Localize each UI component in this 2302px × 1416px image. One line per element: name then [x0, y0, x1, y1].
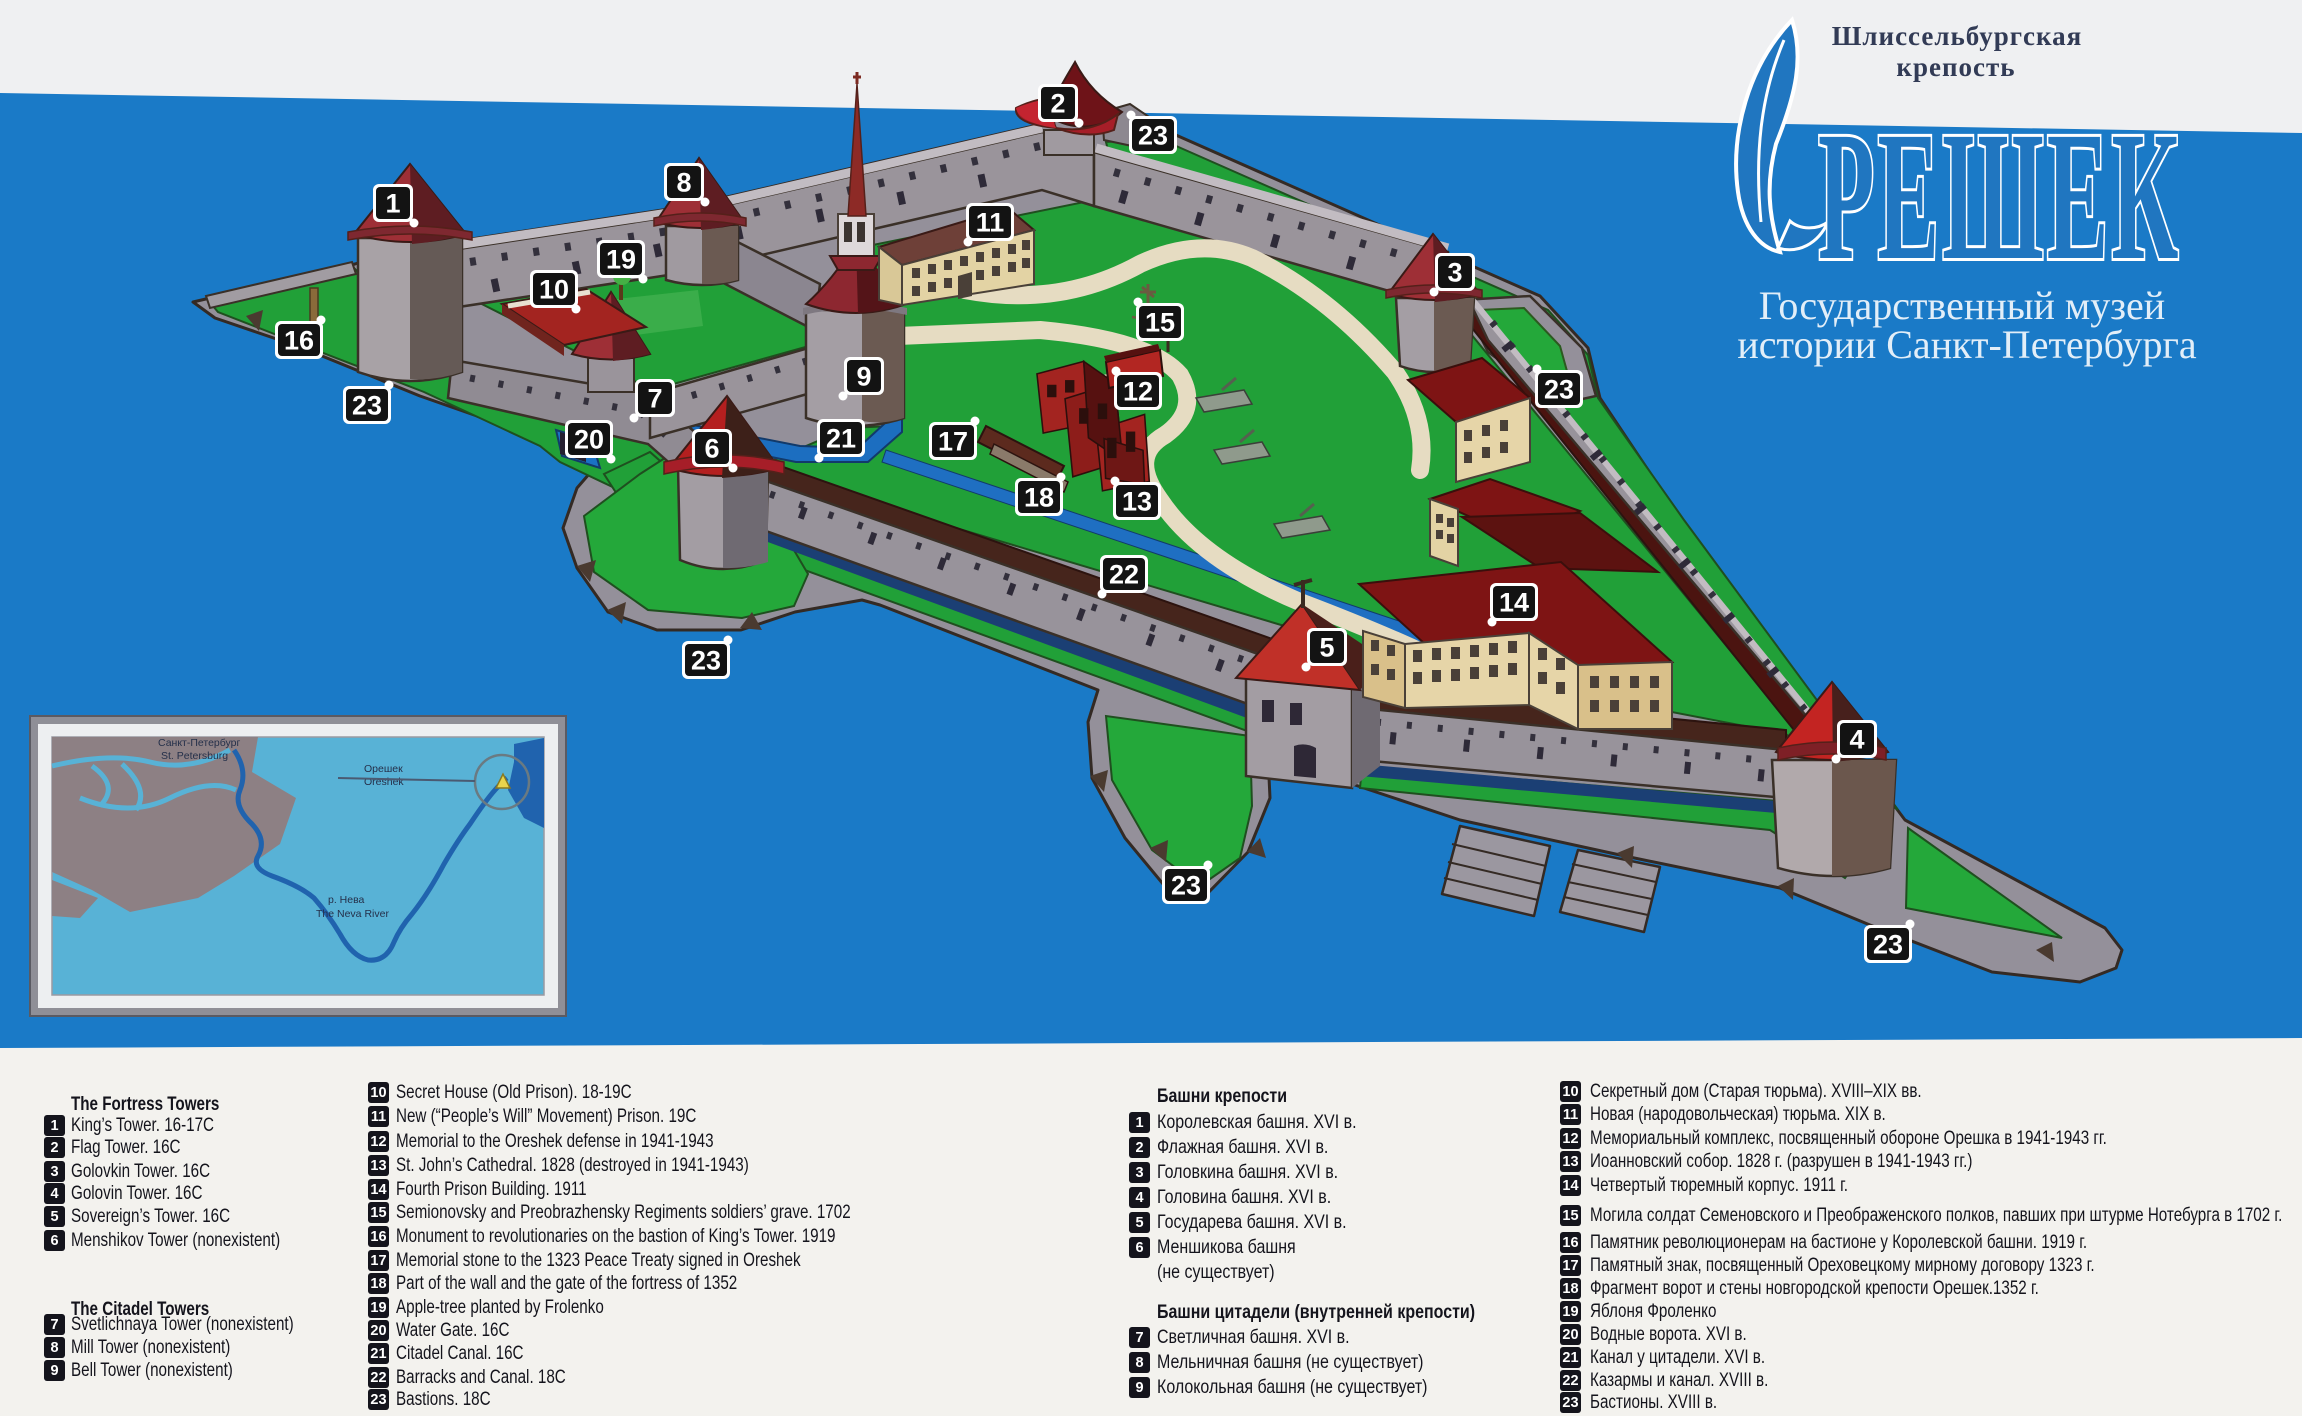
- svg-text:Memorial stone to the 1323 Pea: Memorial stone to the 1323 Peace Treaty …: [396, 1248, 801, 1270]
- svg-text:9: 9: [856, 362, 871, 392]
- svg-text:Орешек: Орешек: [364, 763, 403, 775]
- svg-text:St. John’s Cathedral. 1828 (de: St. John’s Cathedral. 1828 (destroyed in…: [396, 1153, 749, 1175]
- svg-text:Secret House (Old Prison). 18-: Secret House (Old Prison). 18-19C: [396, 1080, 632, 1102]
- svg-text:6: 6: [704, 434, 719, 464]
- svg-text:Water Gate. 16C: Water Gate. 16C: [396, 1318, 509, 1340]
- svg-text:(не существует): (не существует): [1157, 1261, 1275, 1283]
- svg-text:11: 11: [976, 208, 1005, 238]
- svg-text:14: 14: [1562, 1178, 1578, 1194]
- svg-text:23: 23: [352, 391, 382, 421]
- svg-text:7: 7: [1135, 1330, 1143, 1346]
- svg-text:Секретный дом (Старая тюрьма).: Секретный дом (Старая тюрьма). XVIII–XIX…: [1590, 1079, 1922, 1101]
- svg-text:The Neva River: The Neva River: [316, 908, 389, 920]
- svg-text:12: 12: [370, 1134, 386, 1150]
- svg-text:23: 23: [1873, 930, 1903, 960]
- svg-text:3: 3: [1135, 1165, 1143, 1181]
- svg-text:16: 16: [1562, 1235, 1578, 1251]
- svg-text:16: 16: [370, 1229, 386, 1245]
- svg-text:16: 16: [284, 326, 314, 356]
- svg-text:15: 15: [1145, 308, 1175, 338]
- svg-text:2: 2: [50, 1140, 58, 1156]
- svg-text:12: 12: [1123, 377, 1153, 407]
- svg-text:19: 19: [370, 1300, 386, 1316]
- svg-text:21: 21: [1562, 1350, 1578, 1366]
- svg-text:Bastions. 18C: Bastions. 18C: [396, 1387, 491, 1409]
- svg-text:18: 18: [370, 1276, 386, 1292]
- svg-text:Светличная башня. XVI в.: Светличная башня. XVI в.: [1157, 1326, 1350, 1348]
- svg-text:St. Petersburg: St. Petersburg: [161, 750, 228, 762]
- svg-text:10: 10: [539, 275, 569, 305]
- svg-text:Semionovsky and Preobrazhensky: Semionovsky and Preobrazhensky Regiments…: [396, 1200, 851, 1222]
- svg-text:5: 5: [1319, 633, 1334, 663]
- svg-text:Яблоня Фроленко: Яблоня Фроленко: [1590, 1299, 1716, 1321]
- svg-text:Бастионы. XVIII в.: Бастионы. XVIII в.: [1590, 1390, 1717, 1412]
- svg-text:Citadel Canal. 16C: Citadel Canal. 16C: [396, 1341, 524, 1363]
- svg-text:21: 21: [826, 424, 856, 454]
- svg-text:Головкина башня. XVI в.: Головкина башня. XVI в.: [1157, 1161, 1338, 1183]
- svg-text:Памятный знак, посвященный Оре: Памятный знак, посвященный Ореховецкому …: [1590, 1253, 2095, 1275]
- svg-text:Memorial to the Oreshek defens: Memorial to the Oreshek defense in 1941-…: [396, 1129, 714, 1151]
- svg-text:Monument to revolutionaries on: Monument to revolutionaries on the basti…: [396, 1224, 836, 1246]
- svg-text:23: 23: [1138, 121, 1168, 151]
- svg-text:6: 6: [1135, 1240, 1143, 1256]
- svg-text:4: 4: [1135, 1190, 1143, 1206]
- svg-text:Государева башня. XVI в.: Государева башня. XVI в.: [1157, 1211, 1347, 1233]
- svg-text:10: 10: [370, 1085, 386, 1101]
- svg-text:2: 2: [1050, 89, 1065, 119]
- svg-text:Фрагмент ворот и стены новгоро: Фрагмент ворот и стены новгородской креп…: [1590, 1276, 2039, 1298]
- svg-text:13: 13: [1562, 1154, 1578, 1170]
- svg-text:Bell Tower (nonexistent): Bell Tower (nonexistent): [71, 1358, 233, 1380]
- svg-text:Sovereign’s Tower. 16C: Sovereign’s Tower. 16C: [71, 1204, 230, 1226]
- svg-text:23: 23: [1171, 871, 1201, 901]
- svg-text:17: 17: [370, 1253, 386, 1269]
- svg-text:6: 6: [50, 1233, 58, 1249]
- svg-text:The Fortress Towers: The Fortress Towers: [71, 1092, 219, 1114]
- svg-text:18: 18: [1024, 483, 1054, 513]
- svg-text:Меншикова башня: Меншикова башня: [1157, 1236, 1296, 1258]
- svg-text:8: 8: [50, 1340, 58, 1356]
- svg-text:Водные ворота. XVI в.: Водные ворота. XVI в.: [1590, 1322, 1747, 1344]
- svg-text:21: 21: [370, 1346, 386, 1362]
- svg-text:Королевская башня. XVI в.: Королевская башня. XVI в.: [1157, 1111, 1357, 1133]
- svg-text:14: 14: [370, 1182, 386, 1198]
- svg-text:19: 19: [1562, 1304, 1578, 1320]
- svg-text:Головина башня. XVI в.: Головина башня. XVI в.: [1157, 1186, 1331, 1208]
- svg-text:23: 23: [1544, 375, 1574, 405]
- svg-text:крепость: крепость: [1896, 52, 2015, 82]
- svg-text:Казармы и канал. XVIII в.: Казармы и канал. XVIII в.: [1590, 1368, 1768, 1390]
- svg-text:7: 7: [647, 384, 662, 414]
- svg-text:9: 9: [50, 1363, 58, 1379]
- svg-text:10: 10: [1562, 1084, 1578, 1100]
- svg-text:17: 17: [938, 427, 968, 457]
- svg-text:1: 1: [385, 189, 400, 219]
- svg-text:20: 20: [574, 425, 604, 455]
- svg-text:19: 19: [606, 245, 636, 275]
- svg-text:18: 18: [1562, 1281, 1578, 1297]
- svg-text:Мельничная башня (не существуе: Мельничная башня (не существует): [1157, 1351, 1423, 1373]
- svg-text:13: 13: [1122, 487, 1152, 517]
- svg-text:Mill Tower (nonexistent): Mill Tower (nonexistent): [71, 1335, 230, 1357]
- svg-text:3: 3: [1447, 258, 1462, 288]
- svg-text:р. Нева: р. Нева: [328, 894, 365, 906]
- svg-text:5: 5: [50, 1209, 58, 1225]
- svg-text:17: 17: [1562, 1258, 1578, 1274]
- svg-text:15: 15: [370, 1205, 386, 1221]
- svg-text:23: 23: [691, 646, 721, 676]
- svg-text:Новая (народовольческая) тюрьм: Новая (народовольческая) тюрьма. XIX в.: [1590, 1102, 1886, 1124]
- svg-text:11: 11: [1563, 1107, 1578, 1123]
- svg-text:23: 23: [370, 1392, 386, 1408]
- svg-text:Golovin Tower. 16C: Golovin Tower. 16C: [71, 1181, 202, 1203]
- svg-text:3: 3: [50, 1164, 58, 1180]
- svg-text:20: 20: [370, 1323, 386, 1339]
- svg-text:Apple-tree planted by Frolenko: Apple-tree planted by Frolenko: [396, 1295, 604, 1317]
- svg-text:15: 15: [1562, 1208, 1578, 1224]
- svg-text:4: 4: [1849, 725, 1864, 755]
- svg-text:Колокольная башня (не существу: Колокольная башня (не существует): [1157, 1376, 1428, 1398]
- svg-text:20: 20: [1562, 1327, 1578, 1343]
- svg-text:23: 23: [1562, 1395, 1578, 1411]
- svg-text:1: 1: [1135, 1115, 1143, 1131]
- svg-text:Flag Tower. 16C: Flag Tower. 16C: [71, 1135, 181, 1157]
- svg-text:Памятник революционерам на бас: Памятник революционерам на бастионе у Ко…: [1590, 1230, 2087, 1252]
- svg-text:11: 11: [371, 1109, 386, 1125]
- svg-text:Golovkin Tower. 16C: Golovkin Tower. 16C: [71, 1159, 210, 1181]
- svg-text:Иоанновский собор. 1828 г. (ра: Иоанновский собор. 1828 г. (разрушен в 1…: [1590, 1149, 1972, 1171]
- svg-text:Башни крепости: Башни крепости: [1157, 1085, 1287, 1107]
- svg-text:Svetlichnaya Tower (nonexisten: Svetlichnaya Tower (nonexistent): [71, 1312, 294, 1334]
- svg-text:Menshikov Tower (nonexistent): Menshikov Tower (nonexistent): [71, 1228, 280, 1250]
- svg-text:Четвертый тюремный корпус. 191: Четвертый тюремный корпус. 1911 г.: [1590, 1173, 1848, 1195]
- svg-text:9: 9: [1135, 1380, 1143, 1396]
- svg-text:22: 22: [1109, 560, 1139, 590]
- svg-text:РЕШЕК: РЕШЕК: [1818, 94, 2182, 299]
- svg-text:2: 2: [1135, 1140, 1143, 1156]
- svg-text:истории Санкт-Петербурга: истории Санкт-Петербурга: [1737, 322, 2197, 367]
- svg-text:King’s Tower. 16-17C: King’s Tower. 16-17C: [71, 1113, 214, 1135]
- svg-text:Канал у цитадели. XVI в.: Канал у цитадели. XVI в.: [1590, 1345, 1765, 1367]
- svg-text:Part of the wall and the gate: Part of the wall and the gate of the for…: [396, 1271, 737, 1293]
- svg-text:Могила солдат Семеновского и П: Могила солдат Семеновского и Преображенс…: [1590, 1203, 2282, 1225]
- svg-text:22: 22: [1562, 1373, 1578, 1389]
- svg-text:Санкт-Петербург: Санкт-Петербург: [158, 737, 241, 749]
- svg-text:New (“People’s Will” Movement): New (“People’s Will” Movement) Prison. 1…: [396, 1104, 696, 1126]
- svg-text:1: 1: [50, 1118, 58, 1134]
- svg-text:12: 12: [1562, 1131, 1578, 1147]
- svg-text:8: 8: [1135, 1355, 1143, 1371]
- svg-text:Fourth Prison Building. 1911: Fourth Prison Building. 1911: [396, 1177, 587, 1199]
- svg-text:Barracks and Canal. 18C: Barracks and Canal. 18C: [396, 1365, 566, 1387]
- svg-text:13: 13: [370, 1158, 386, 1174]
- svg-text:4: 4: [50, 1186, 58, 1202]
- svg-text:14: 14: [1499, 588, 1529, 618]
- svg-text:5: 5: [1135, 1215, 1143, 1231]
- svg-text:Башни цитадели (внутренней кре: Башни цитадели (внутренней крепости): [1157, 1301, 1475, 1323]
- svg-text:Мемориальный комплекс, посвяще: Мемориальный комплекс, посвященный оборо…: [1590, 1126, 2107, 1148]
- svg-text:Флажная башня. XVI в.: Флажная башня. XVI в.: [1157, 1136, 1328, 1158]
- svg-text:Шлиссельбургская: Шлиссельбургская: [1832, 21, 2083, 51]
- svg-text:7: 7: [50, 1317, 58, 1333]
- svg-text:22: 22: [370, 1370, 386, 1386]
- svg-text:8: 8: [676, 168, 691, 198]
